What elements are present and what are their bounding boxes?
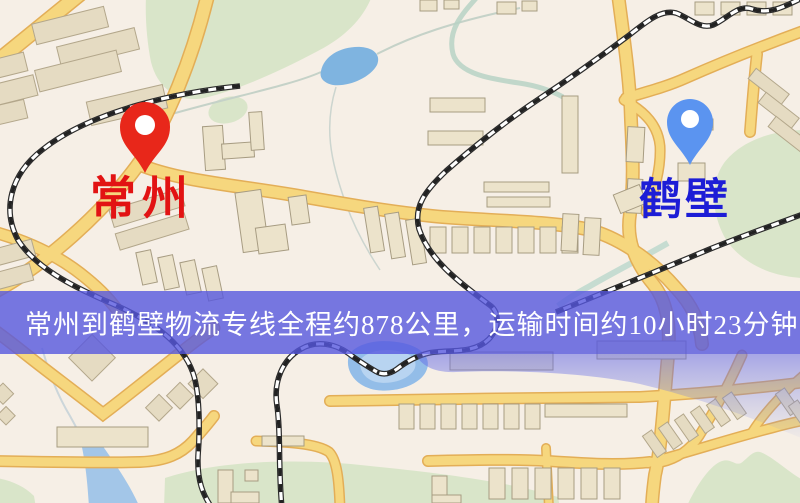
map-viewport[interactable]: 常州 鹤壁 常州到鹤壁物流专线全程约878公里，运输时间约10小时23分钟. [0, 0, 800, 503]
map-canvas [0, 0, 800, 503]
destination-pin-hole [681, 110, 699, 128]
destination-city-label: 鹤壁 [639, 179, 731, 222]
origin-city-label: 常州 [90, 176, 194, 222]
route-info-text: 常州到鹤壁物流专线全程约878公里，运输时间约10小时23分钟. [0, 303, 800, 342]
origin-pin-hole [135, 115, 155, 135]
route-info-banner: 常州到鹤壁物流专线全程约878公里，运输时间约10小时23分钟. [0, 291, 800, 354]
